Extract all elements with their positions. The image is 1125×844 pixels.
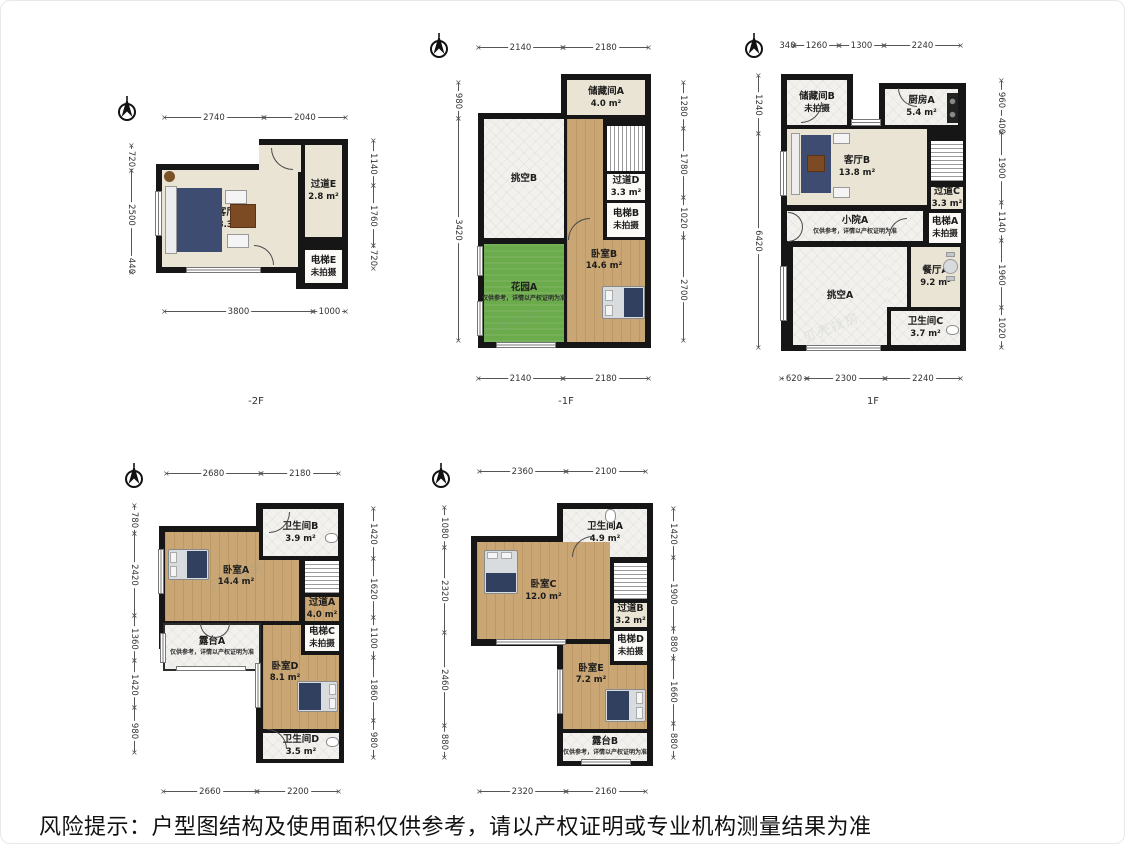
- window-icon: [496, 342, 556, 348]
- dimension: 2200: [257, 791, 339, 792]
- bed-blanket-icon: [187, 551, 207, 578]
- dimension: 1280: [683, 83, 684, 129]
- dimension: 980: [373, 721, 374, 758]
- room-hall-b: 过道B 3.2 m²: [614, 603, 647, 627]
- dimension: 1420: [673, 509, 674, 558]
- floorplan-sheet: 客厅A 18.3 m² 过道E 2.8 m² 电梯E 未拍摄 2740 2040…: [0, 0, 1125, 844]
- dimension: 1900: [673, 558, 674, 629]
- armchair-icon: [833, 187, 850, 198]
- dimension: 1860: [373, 658, 374, 721]
- bed-blanket-icon: [607, 691, 629, 720]
- room-hall-e: 过道E 2.8 m²: [305, 145, 342, 237]
- window-icon: [780, 151, 787, 196]
- dimension: 2460: [444, 633, 445, 726]
- dimension: 720: [373, 246, 374, 269]
- armchair-icon: [227, 234, 249, 248]
- dimension: 1900: [1001, 133, 1002, 203]
- risk-disclaimer: 风险提示：户型图结构及使用面积仅供参考，请以产权证明或专业机构测量结果为准: [39, 809, 872, 841]
- room-storage-a: 储藏间A 4.0 m²: [567, 80, 645, 115]
- room-bedroom-d-label: 卧室D 8.1 m²: [259, 661, 311, 683]
- chair-icon: [946, 276, 955, 281]
- dimension: 440: [131, 259, 132, 273]
- room-hall-d: 过道D 3.3 m²: [607, 174, 645, 200]
- dimension: 1140: [373, 141, 374, 186]
- dimension: 2680: [166, 473, 261, 474]
- room-bedroom-a-label: 卧室A 14.4 m²: [206, 565, 266, 587]
- pillow-icon: [170, 552, 177, 563]
- room-lift-a: 电梯A 未拍摄: [929, 213, 961, 243]
- dimension: 1360: [134, 616, 135, 661]
- dimension: 1620: [373, 559, 374, 618]
- toilet-icon: [326, 737, 339, 747]
- dimension: 2500: [131, 171, 132, 259]
- room-garden-a: 花园A 仅供参考，详情以产权证明为准: [484, 244, 564, 342]
- window-icon: [496, 639, 566, 645]
- window-icon: [158, 549, 164, 594]
- room-hall-a: 过道A 4.0 m²: [305, 597, 339, 621]
- stove-icon: [947, 93, 958, 123]
- dimension: 3800: [164, 311, 313, 312]
- coffee-table-icon: [230, 204, 256, 228]
- dimension: 1420: [134, 661, 135, 708]
- toilet-icon: [325, 533, 338, 543]
- dimension: 1240: [758, 76, 759, 134]
- pillow-icon: [501, 552, 512, 559]
- north-compass-icon: [428, 33, 450, 61]
- dimension: 1020: [1001, 308, 1002, 348]
- sofa-icon: [165, 186, 177, 254]
- north-compass-icon: [116, 96, 138, 124]
- window-icon: [176, 666, 246, 671]
- dimension: 2140: [478, 47, 563, 48]
- dimension: 1020: [683, 198, 684, 238]
- stairs-icon: [931, 141, 963, 181]
- room-lift-b: 电梯B 未拍摄: [607, 203, 645, 237]
- pillow-icon: [636, 707, 643, 719]
- room-lift-e: 电梯E 未拍摄: [305, 250, 342, 283]
- dining-table-icon: [943, 259, 958, 274]
- dimension: 3420: [458, 119, 459, 341]
- dimension: 2320: [444, 548, 445, 633]
- dimension: 2240: [885, 378, 961, 379]
- dimension: 1760: [373, 186, 374, 246]
- dimension: 980: [134, 708, 135, 753]
- pillow-icon: [329, 684, 336, 695]
- dimension: 2740: [164, 117, 264, 118]
- dimension: 2360: [479, 471, 566, 472]
- window-icon: [186, 267, 261, 273]
- room-void-b: 挑空B: [484, 119, 564, 238]
- room-bedroom-e-label: 卧室E 7.2 m²: [565, 663, 617, 685]
- toilet-icon: [946, 325, 959, 335]
- dimension: 880: [673, 724, 674, 758]
- dimension: 1960: [1001, 241, 1002, 308]
- dimension: 2040: [264, 117, 346, 118]
- floor-label: -2F: [236, 396, 276, 407]
- dimension: 1780: [683, 129, 684, 198]
- dimension: 2160: [566, 791, 646, 792]
- room-hall-c: 过道C 3.3 m²: [931, 187, 963, 209]
- north-compass-icon: [123, 463, 145, 491]
- armchair-icon: [833, 133, 850, 144]
- stairs-icon: [614, 563, 647, 599]
- dimension: 2180: [563, 378, 649, 379]
- rug-icon: [174, 188, 222, 252]
- chair-icon: [946, 252, 955, 257]
- window-icon: [557, 669, 563, 714]
- pillow-icon: [170, 566, 177, 577]
- sofa-icon: [791, 133, 800, 195]
- pillow-icon: [329, 698, 336, 709]
- stairs-icon: [607, 126, 645, 171]
- window-icon: [780, 266, 787, 321]
- window-icon: [581, 759, 631, 765]
- window-icon: [477, 246, 483, 276]
- floor-label: -1F: [546, 396, 586, 407]
- dimension: 1080: [444, 508, 445, 548]
- plant-icon: [164, 171, 175, 182]
- room-void-a: 挑空A: [793, 247, 887, 345]
- dimension: 2180: [261, 473, 339, 474]
- dimension: 1300: [839, 45, 884, 46]
- dimension: 2180: [563, 47, 649, 48]
- room-lift-d: 电梯D 未拍摄: [614, 631, 647, 661]
- bed-blanket-icon: [299, 683, 321, 710]
- room-lift-c: 电梯C 未拍摄: [305, 625, 339, 651]
- north-compass-icon: [430, 463, 452, 491]
- pillow-icon: [605, 290, 613, 301]
- dimension: 2140: [478, 378, 563, 379]
- window-icon: [160, 633, 166, 663]
- stairs-icon: [305, 561, 339, 593]
- dimension: 1100: [373, 618, 374, 658]
- window-icon: [155, 191, 162, 236]
- floor-label: 1F: [853, 396, 893, 407]
- room-terrace-b: 露台B 仅供参考，详情以产权证明为准: [563, 733, 647, 761]
- dimension: 1420: [373, 509, 374, 559]
- bed-blanket-icon: [624, 288, 643, 317]
- toilet-icon: [605, 509, 616, 523]
- room-bedroom-b-label: 卧室B 14.6 m²: [576, 249, 632, 271]
- dimension: 2420: [134, 534, 135, 616]
- dimension: 2300: [807, 378, 885, 379]
- coffee-table-icon: [807, 155, 825, 172]
- window-icon: [851, 119, 881, 126]
- pillow-icon: [605, 305, 613, 316]
- dimension: 2320: [479, 791, 566, 792]
- bed-blanket-icon: [486, 573, 516, 592]
- dimension: 1260: [794, 45, 839, 46]
- pillow-icon: [636, 692, 643, 704]
- north-compass-icon: [743, 33, 765, 61]
- dimension: 6420: [758, 134, 759, 348]
- dimension: 2660: [163, 791, 257, 792]
- dimension: 1660: [673, 659, 674, 724]
- armchair-icon: [225, 190, 247, 204]
- dimension: 880: [444, 726, 445, 758]
- window-icon: [477, 301, 483, 336]
- dimension: 2240: [884, 45, 961, 46]
- dimension: 1000: [313, 311, 346, 312]
- window-icon: [806, 345, 881, 351]
- dimension: 2700: [683, 238, 684, 341]
- dimension: 2100: [566, 471, 646, 472]
- pillow-icon: [487, 552, 498, 559]
